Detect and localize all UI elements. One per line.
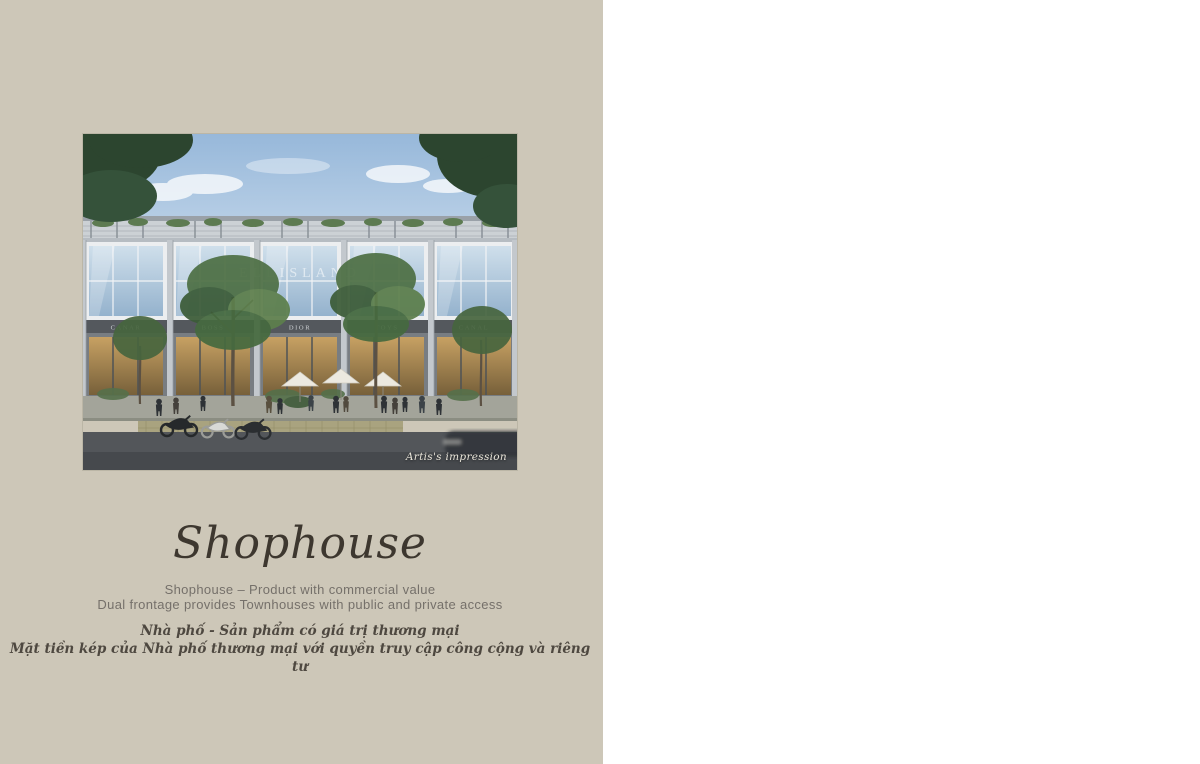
brochure-page: ELLISLAND CANAR BOSS DIOR TOYS CANAL bbox=[0, 0, 1200, 764]
description-en-line1: Shophouse – Product with commercial valu… bbox=[165, 582, 436, 597]
page-title: Shophouse bbox=[0, 518, 600, 569]
description-vietnamese: Nhà phố - Sản phẩm có giá trị thương mại… bbox=[0, 622, 600, 676]
description-vi-line2: Mặt tiền kép của Nhà phố thương mại với … bbox=[10, 641, 590, 675]
description-en-line2: Dual frontage provides Townhouses with p… bbox=[97, 597, 502, 612]
left-panel: ELLISLAND CANAR BOSS DIOR TOYS CANAL bbox=[0, 0, 603, 764]
description-english: Shophouse – Product with commercial valu… bbox=[0, 582, 600, 612]
shophouse-illustration: ELLISLAND CANAR BOSS DIOR TOYS CANAL bbox=[83, 134, 517, 470]
description-vi-line1: Nhà phố - Sản phẩm có giá trị thương mại bbox=[141, 623, 460, 639]
shop-sign: DIOR bbox=[289, 325, 311, 332]
right-panel: TK06 GFA: : 325m² 1ST FLOOR: 88m² 2ND FL… bbox=[603, 0, 1200, 764]
photo-caption: Artis's impression bbox=[406, 451, 507, 463]
shophouse-render-image: ELLISLAND CANAR BOSS DIOR TOYS CANAL bbox=[83, 134, 517, 470]
